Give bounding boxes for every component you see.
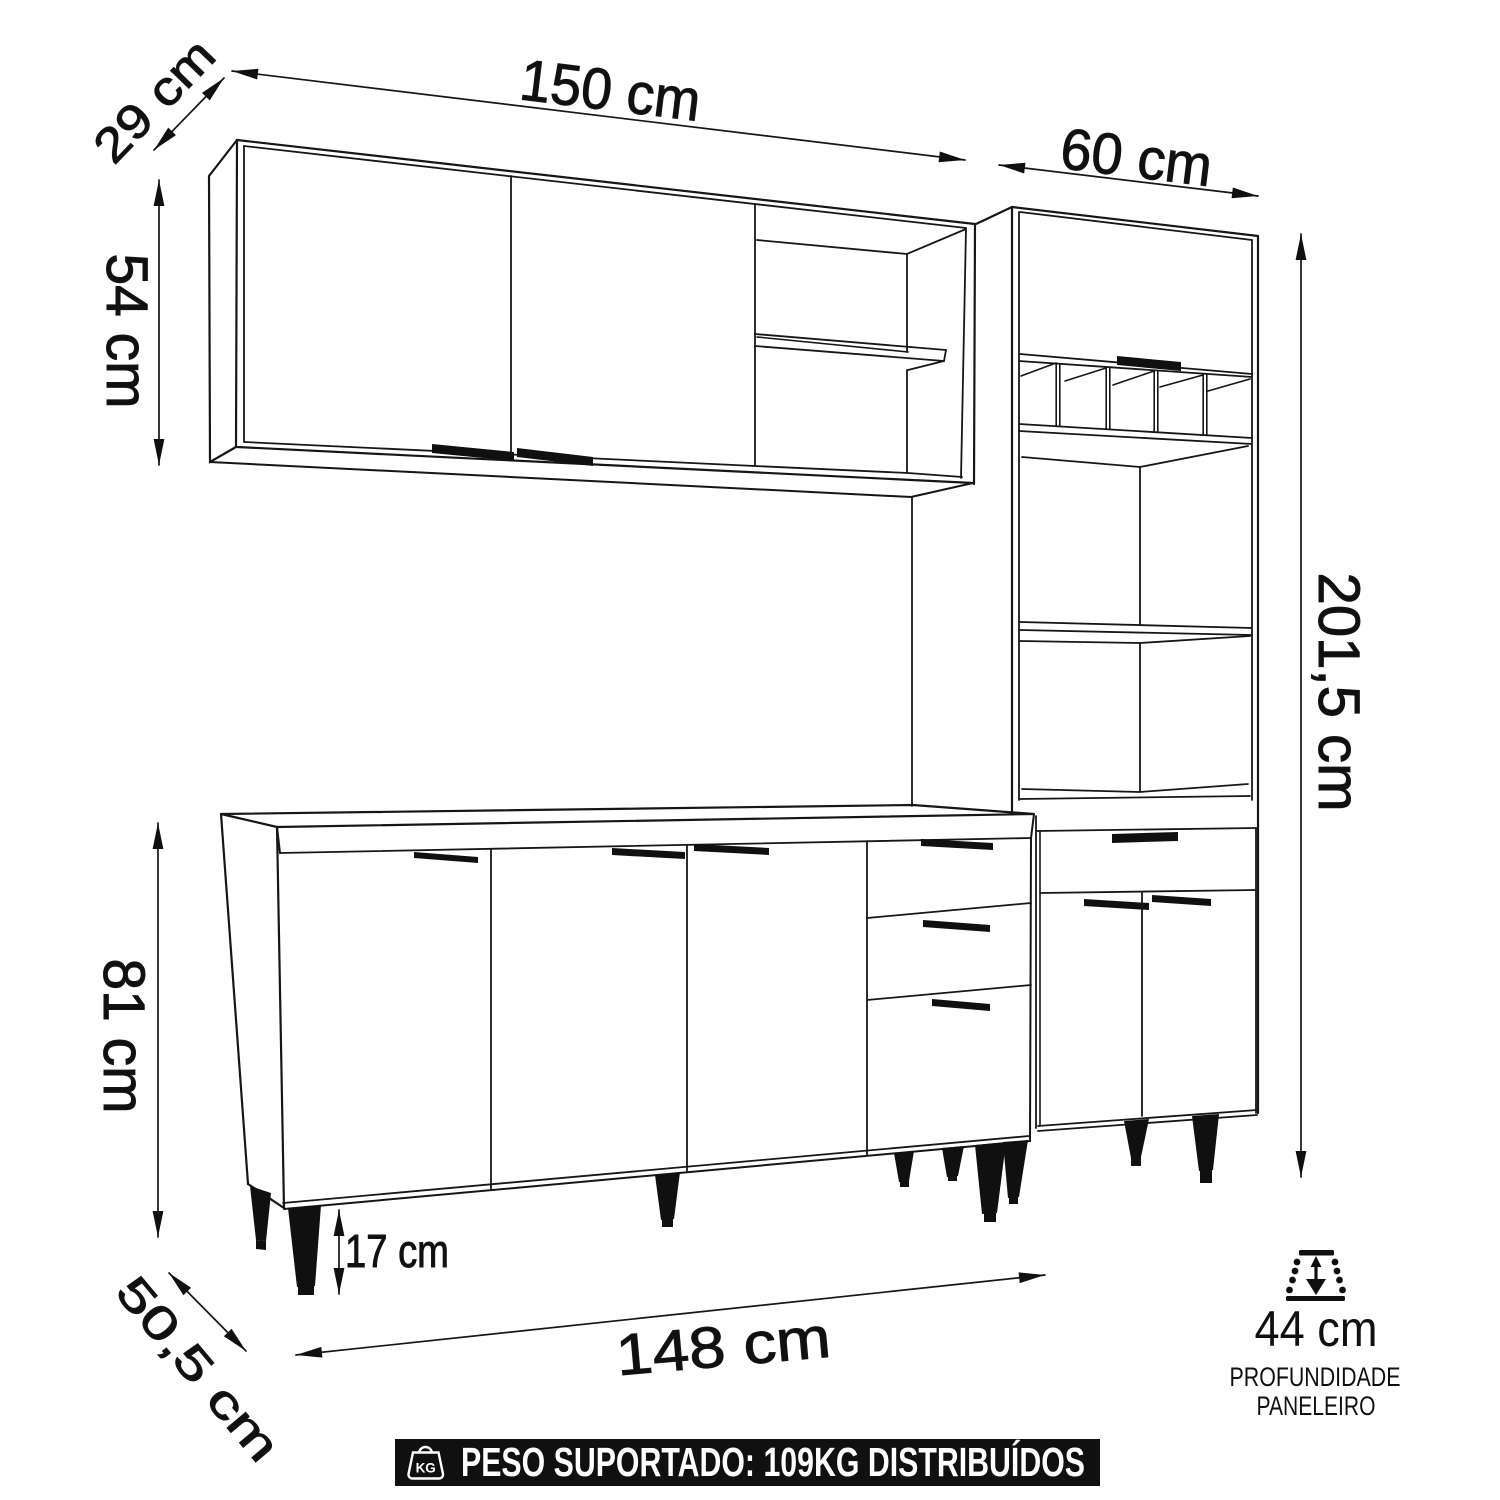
svg-text:17 cm: 17 cm	[345, 1225, 449, 1277]
svg-text:54 cm: 54 cm	[94, 254, 159, 409]
svg-text:PESO SUPORTADO: 109KG DISTRIBU: PESO SUPORTADO: 109KG DISTRIBUÍDOS	[461, 1439, 1085, 1485]
svg-text:44 cm: 44 cm	[1255, 1301, 1378, 1357]
svg-text:201,5 cm: 201,5 cm	[1306, 573, 1371, 812]
svg-text:PROFUNDIDADE: PROFUNDIDADE	[1230, 1362, 1401, 1392]
svg-text:PANELEIRO: PANELEIRO	[1257, 1391, 1376, 1421]
svg-text:81 cm: 81 cm	[91, 959, 156, 1114]
svg-text:KG: KG	[416, 1461, 436, 1476]
